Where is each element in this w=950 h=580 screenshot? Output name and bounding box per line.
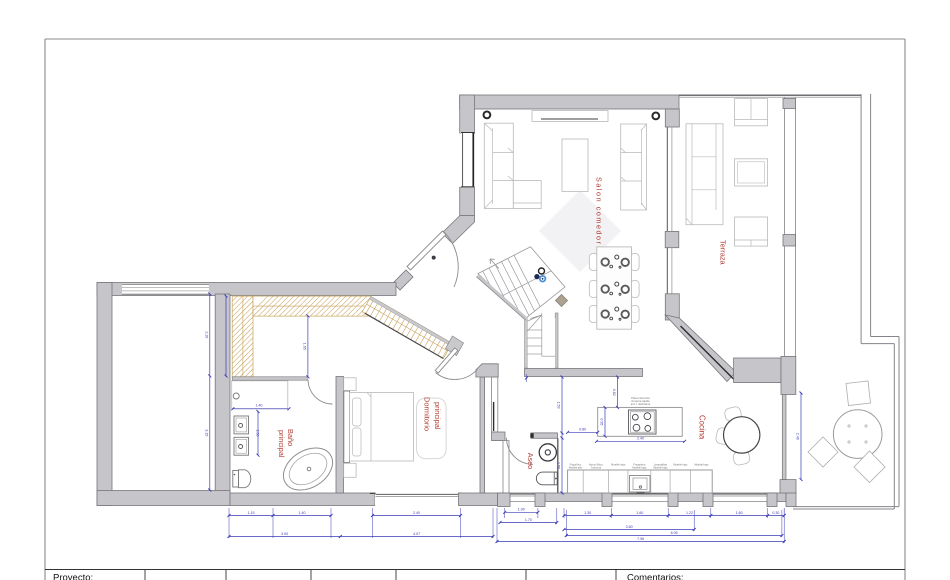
svg-text:Cocina: Cocina [698,415,707,440]
svg-text:4.07: 4.07 [413,532,420,536]
svg-text:1.50: 1.50 [557,462,561,469]
svg-text:Aseo: Aseo [526,453,535,469]
svg-text:1.50: 1.50 [256,430,260,437]
svg-text:Mueble bajo: Mueble bajo [694,462,709,466]
svg-text:1.60: 1.60 [736,511,743,515]
svg-text:2.40: 2.40 [637,437,644,441]
svg-text:1.22: 1.22 [686,511,693,515]
svg-text:0.82: 0.82 [612,389,616,396]
svg-text:2.46: 2.46 [796,433,800,440]
svg-text:Mueble bajo: Mueble bajo [653,465,668,469]
svg-text:principal: principal [433,402,442,430]
svg-text:2.40: 2.40 [413,511,420,515]
svg-text:principal: principal [277,430,286,458]
svg-text:Proyecto:: Proyecto: [53,573,93,580]
svg-text:a/m f. deslizante: a/m f. deslizante [631,402,651,406]
svg-text:3.00: 3.00 [281,532,288,536]
svg-text:1.15: 1.15 [248,511,255,515]
svg-text:1.70: 1.70 [525,518,532,522]
svg-text:3.15: 3.15 [204,429,208,436]
svg-text:0.30: 0.30 [772,511,779,515]
svg-text:0.95: 0.95 [600,418,604,425]
svg-text:Terraza: Terraza [719,240,728,266]
svg-text:Comentarios:: Comentarios: [627,573,684,580]
svg-text:1.40: 1.40 [256,404,263,408]
svg-text:Baño: Baño [286,429,295,446]
svg-text:6.05: 6.05 [671,531,678,535]
svg-text:Mueble bajo: Mueble bajo [673,462,688,466]
svg-text:1.00: 1.00 [518,508,525,512]
svg-text:2.26: 2.26 [204,331,208,338]
svg-text:Mueble bajo: Mueble bajo [611,462,626,466]
svg-text:3.60: 3.60 [626,525,633,529]
svg-text:0.80: 0.80 [579,428,586,432]
svg-text:1.53: 1.53 [557,402,561,409]
svg-text:1.65: 1.65 [303,343,307,350]
svg-text:Columna: Columna [591,465,602,469]
svg-text:Dormitorio: Dormitorio [423,397,432,431]
svg-text:1.60: 1.60 [636,511,643,515]
svg-text:1.40: 1.40 [299,511,306,515]
svg-text:Mueble alto: Mueble alto [569,465,583,469]
svg-text:1.30: 1.30 [584,511,591,515]
svg-text:Mueble bajo: Mueble bajo [632,465,647,469]
svg-text:7.96: 7.96 [637,537,644,541]
